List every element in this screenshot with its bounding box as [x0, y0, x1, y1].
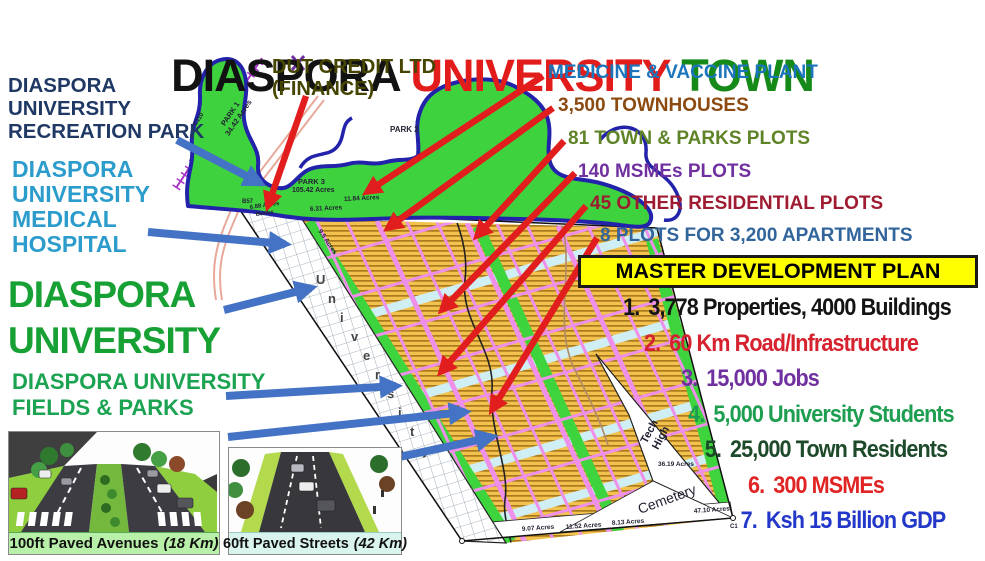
avenues-image-card: 100ft Paved Avenues (18 Km) — [8, 431, 220, 555]
plan-item-1: 1.3,778 Properties, 4000 Buildings — [603, 290, 972, 326]
avenues-render — [9, 432, 217, 532]
plan-item-5: 5.25,000 Town Residents — [642, 432, 985, 468]
label-town-parks-plots: 81 TOWN & PARKS PLOTS — [568, 128, 810, 150]
label-diaspora-university: DIASPORA UNIVERSITY — [8, 272, 220, 364]
plan-item-6: 6.300 MSMEs — [632, 468, 985, 504]
plan-item-4: 4.5,000 University Students — [637, 397, 985, 433]
streets-caption-km: (42 Km) — [354, 536, 407, 552]
svg-text:r: r — [375, 367, 380, 382]
svg-text:e: e — [363, 348, 370, 363]
plan-item-2: 2.60 Km Road/Infrastructure — [597, 326, 966, 362]
streets-caption-text: 60ft Paved Streets — [223, 536, 349, 552]
streets-caption: 60ft Paved Streets (42 Km) — [229, 532, 401, 554]
park2-label: PARK 2 — [390, 125, 419, 134]
label-medicine-plant: MEDICINE & VACCINE PLANT — [548, 62, 818, 84]
streets-image-card: 60ft Paved Streets (42 Km) — [228, 447, 402, 555]
svg-text:t: t — [410, 424, 415, 439]
river-meander — [300, 118, 352, 168]
label-fields-parks: DIASPORA UNIVERSITY FIELDS & PARKS — [12, 369, 265, 421]
label-msme-plots: 140 MSMEs PLOTS — [578, 161, 751, 183]
svg-text:i: i — [340, 310, 344, 325]
label-dut-credit: DUT CREDIT LTD (FINANCE) — [272, 56, 436, 100]
marker-b57: B57 — [242, 199, 254, 205]
streets-render — [229, 448, 399, 532]
park3-acres: 105.42 Acres — [292, 187, 335, 194]
label-townhouses: 3,500 TOWNHOUSES — [558, 95, 749, 117]
plan-item-3: 3.15,000 Jobs — [566, 361, 935, 397]
svg-text:n: n — [328, 291, 336, 306]
label-residential-plots: 45 OTHER RESIDENTIAL PLOTS — [590, 193, 883, 215]
label-apartment-plots: 8 PLOTS FOR 3,200 APARTMENTS — [600, 225, 913, 247]
poster: PARK 1 34.42 Acres PARK 2 PARK 3 105.42 … — [0, 0, 985, 561]
avenues-caption-text: 100ft Paved Avenues — [10, 535, 159, 552]
arrow-university — [224, 288, 311, 310]
corner-marker-sw — [460, 539, 465, 544]
svg-text:U: U — [316, 272, 325, 287]
park3-label: PARK 3 — [298, 177, 325, 186]
label-recreation-park: DIASPORA UNIVERSITY RECREATION PARK — [8, 74, 204, 143]
master-plan-list: 1.3,778 Properties, 4000 Buildings 2.60 … — [575, 290, 985, 539]
plan-item-7: 7.Ksh 15 Billion GDP — [659, 503, 985, 539]
label-medical-hospital: DIASPORA UNIVERSITY MEDICAL HOSPITAL — [12, 157, 150, 257]
svg-text:v: v — [351, 329, 359, 344]
avenues-caption: 100ft Paved Avenues (18 Km) — [9, 532, 219, 554]
avenues-caption-km: (18 Km) — [163, 535, 218, 552]
master-plan-title: MASTER DEVELOPMENT PLAN — [578, 255, 978, 288]
